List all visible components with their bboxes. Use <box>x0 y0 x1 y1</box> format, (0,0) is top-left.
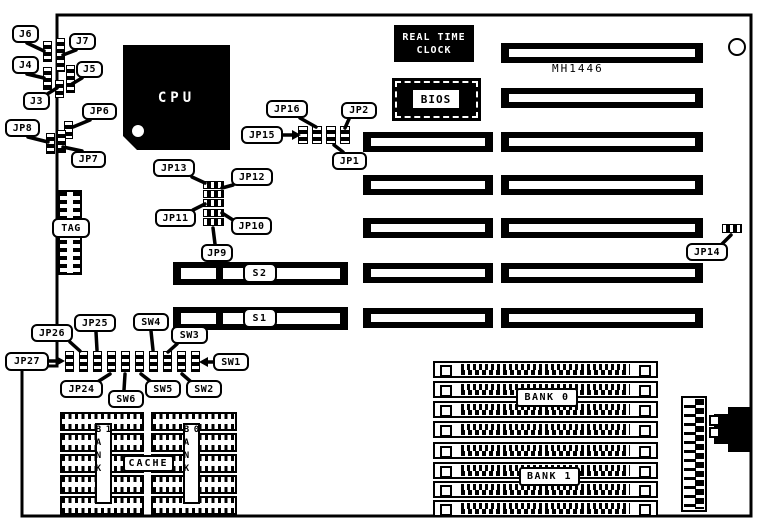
jumper-block <box>57 130 66 153</box>
simm-latch <box>639 504 651 516</box>
cpu-label: CPU <box>158 90 195 106</box>
jumper-block <box>722 224 742 233</box>
callout-jp27: JP27 <box>5 352 49 371</box>
expansion-slot <box>501 88 703 108</box>
callout-j5: J5 <box>76 61 103 78</box>
jumper-block <box>107 351 116 372</box>
jumper-block <box>46 133 55 154</box>
callout-sw4: SW4 <box>133 313 169 331</box>
callout-sw2: SW2 <box>186 380 222 398</box>
cpu-pin1-dot <box>132 125 144 137</box>
jumper-block <box>203 218 224 226</box>
jumper-block <box>43 67 52 90</box>
expansion-slot-segment <box>363 175 493 195</box>
simm-latch <box>639 385 651 397</box>
jumper-block <box>66 65 75 93</box>
expansion-slot-segment <box>363 308 493 328</box>
callout-jp6: JP6 <box>82 103 117 120</box>
expansion-slot <box>501 263 703 283</box>
jumper-block <box>65 351 74 372</box>
callout-jp25: JP25 <box>74 314 116 332</box>
rtc-label: REAL TIME CLOCK <box>396 31 472 57</box>
simm-socket <box>433 500 658 517</box>
callout-sw3: SW3 <box>171 326 208 344</box>
callout-jp16: JP16 <box>266 100 308 118</box>
simm-latch <box>440 365 452 377</box>
simm-latch <box>639 365 651 377</box>
cpu-chip: CPU <box>123 45 230 150</box>
callout-jp26: JP26 <box>31 324 73 342</box>
callout-jp14: JP14 <box>686 243 728 261</box>
callout-j4: J4 <box>12 56 39 74</box>
callout-jp11: JP11 <box>155 209 196 227</box>
simm-latch <box>440 466 452 478</box>
simm-latch <box>440 446 452 458</box>
callout-jp7: JP7 <box>71 151 106 168</box>
cache-bank1-vertical-label: BANK 1 <box>95 423 112 504</box>
simm-latch <box>639 466 651 478</box>
simm-latch <box>440 504 452 516</box>
cache-label: CACHE <box>123 455 174 472</box>
slot-s1-label: S1 <box>243 308 277 328</box>
callout-tag: TAG <box>52 218 90 238</box>
power-connector <box>681 396 707 512</box>
expansion-slot <box>501 308 703 328</box>
callout-sw6: SW6 <box>108 390 144 408</box>
cache-bank0-vertical-label: BANK 0 <box>183 423 200 504</box>
callout-jp15: JP15 <box>241 126 283 144</box>
jumper-block <box>163 351 172 372</box>
simm-latch <box>639 446 651 458</box>
simm-socket <box>433 421 658 438</box>
callout-jp12: JP12 <box>231 168 273 186</box>
jumper-block <box>149 351 158 372</box>
callout-jp10: JP10 <box>231 217 272 235</box>
jumper-block <box>298 126 308 144</box>
din-pin-block-bottom <box>709 427 720 438</box>
jumper-block <box>203 209 224 217</box>
simm-latch <box>639 425 651 437</box>
keyboard-din-connector <box>728 407 752 452</box>
memory-bank1-label: BANK 1 <box>519 467 580 486</box>
simm-latch <box>639 405 651 417</box>
expansion-slot <box>501 218 703 238</box>
jumper-block <box>56 38 65 72</box>
jumper-block <box>79 351 88 372</box>
callout-jp9: JP9 <box>201 244 233 262</box>
callout-sw5: SW5 <box>145 380 181 398</box>
simm-latch <box>440 485 452 497</box>
callout-j6: J6 <box>12 25 39 43</box>
expansion-slot-segment <box>363 218 493 238</box>
expansion-slot <box>501 132 703 152</box>
jumper-block <box>191 351 200 372</box>
jumper-block <box>55 80 64 98</box>
simm-latch <box>440 425 452 437</box>
callout-sw1: SW1 <box>213 353 249 371</box>
simm-socket <box>433 442 658 459</box>
expansion-slot-segment <box>363 132 493 152</box>
callout-jp2: JP2 <box>341 102 377 119</box>
simm-latch <box>639 485 651 497</box>
slot-s2-label: S2 <box>243 263 277 283</box>
expansion-slot <box>501 43 703 63</box>
jumper-block <box>135 351 144 372</box>
mounting-hole <box>729 39 745 55</box>
din-pin-block-top <box>709 415 720 426</box>
bios-label: BIOS <box>413 90 459 108</box>
jumper-block <box>312 126 322 144</box>
callout-jp8: JP8 <box>5 119 40 137</box>
expansion-slot <box>501 175 703 195</box>
expansion-slot-segment <box>363 263 493 283</box>
simm-latch <box>440 405 452 417</box>
bios-chip: BIOS <box>392 78 481 121</box>
jumper-block <box>203 190 224 198</box>
motherboard-diagram: CPU REAL TIME CLOCK BIOS MH1446 S2 S1 BA… <box>0 0 758 527</box>
jumper-block <box>43 41 52 62</box>
simm-socket <box>433 361 658 378</box>
real-time-clock-chip: REAL TIME CLOCK <box>394 25 474 62</box>
callout-jp24: JP24 <box>60 380 103 398</box>
jumper-block <box>93 351 102 372</box>
jumper-block <box>203 181 224 189</box>
model-number: MH1446 <box>552 62 642 76</box>
memory-bank0-label: BANK 0 <box>516 388 578 407</box>
jumper-block <box>121 351 130 372</box>
callout-jp13: JP13 <box>153 159 195 177</box>
jumper-block <box>326 126 336 144</box>
jumper-block <box>177 351 186 372</box>
simm-latch <box>440 385 452 397</box>
jumper-block <box>340 126 350 144</box>
callout-jp1: JP1 <box>332 152 367 170</box>
jumper-block <box>203 199 224 207</box>
callout-j3: J3 <box>23 92 50 110</box>
callout-j7: J7 <box>69 33 96 50</box>
